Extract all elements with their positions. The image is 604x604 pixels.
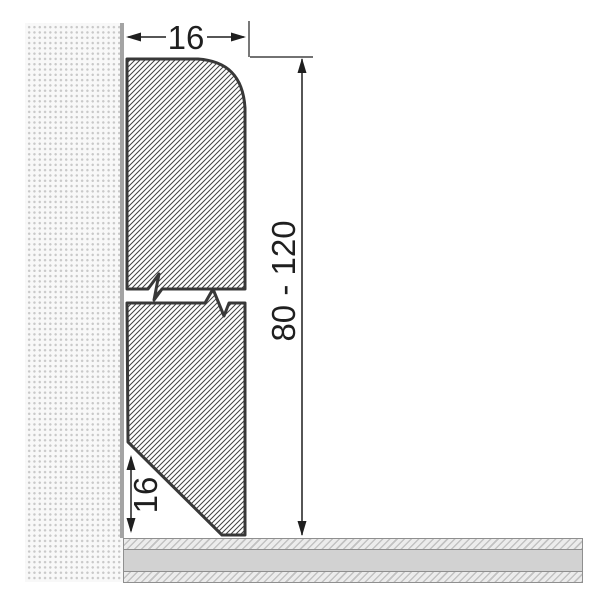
width-arrow-right-icon [231,33,246,42]
width-dimension-label: 16 [168,19,205,56]
height-dimension-label: 80 - 120 [265,220,302,341]
chamfer-arrow-down-icon [127,518,136,533]
height-dimension: 80 - 120 [250,57,313,536]
height-arrow-up-icon [298,58,307,73]
skirting-profile-upper [127,59,245,300]
height-arrow-down-icon [298,521,307,536]
technical-drawing-canvas: 16 80 - 120 16 [0,0,604,604]
chamfer-arrow-up-icon [127,455,136,470]
chamfer-dimension-label: 16 [127,477,164,514]
width-dimension: 16 [126,19,249,57]
profile-drawing: 16 80 - 120 16 [0,0,604,604]
width-arrow-left-icon [126,33,141,42]
